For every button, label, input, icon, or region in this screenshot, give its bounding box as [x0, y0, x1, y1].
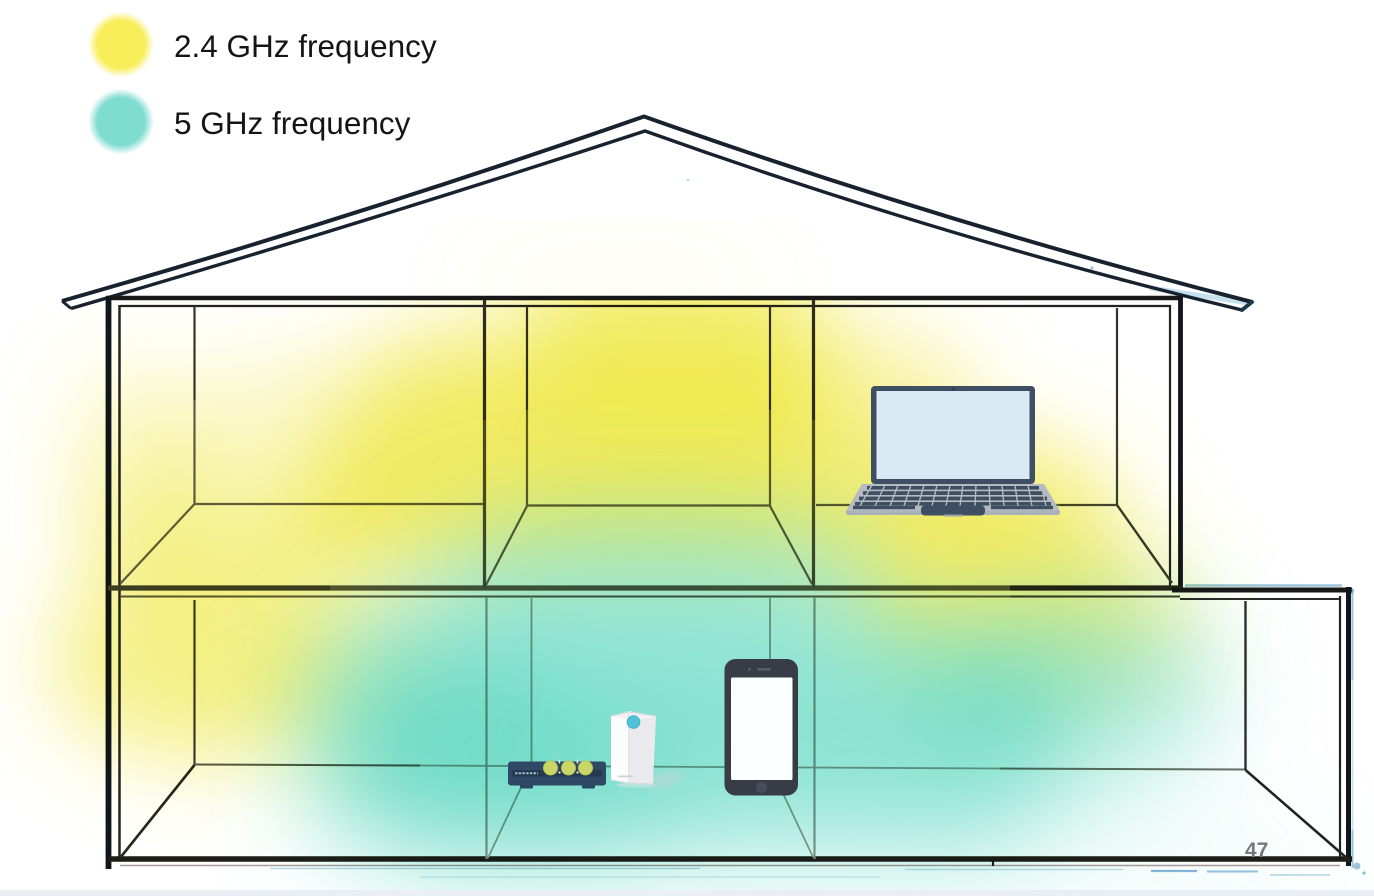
- svg-text:5 GHz frequency: 5 GHz frequency: [174, 105, 411, 141]
- svg-text:2.4 GHz frequency: 2.4 GHz frequency: [174, 28, 437, 64]
- svg-text:47: 47: [1245, 839, 1268, 862]
